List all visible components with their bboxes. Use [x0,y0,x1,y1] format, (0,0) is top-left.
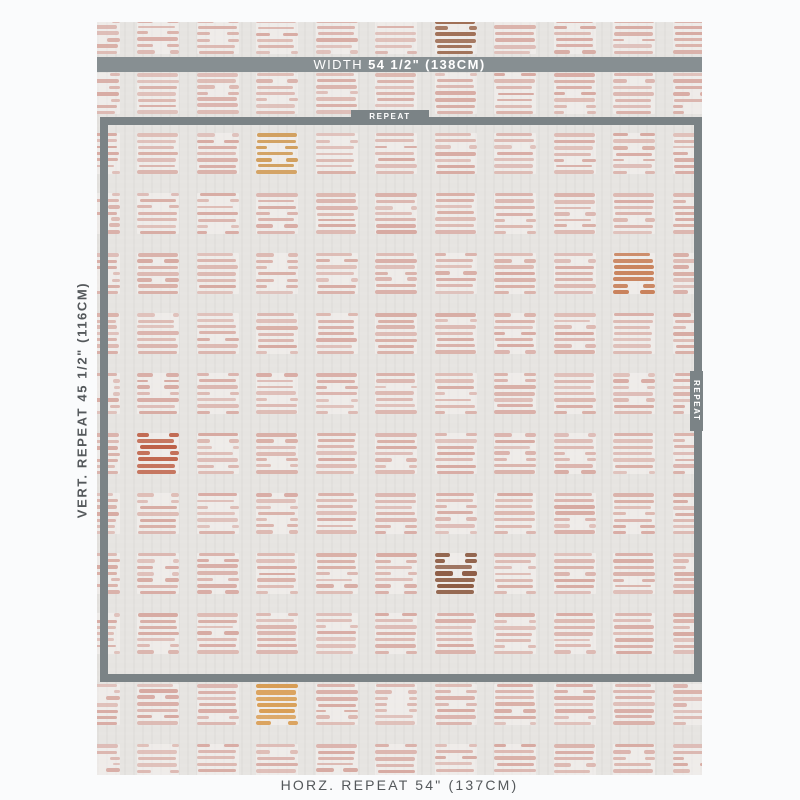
pattern-block [613,73,655,114]
pattern-block [97,684,120,725]
pattern-block [316,684,358,725]
pattern-block [316,744,358,775]
pattern-block [554,22,596,54]
pattern-block [97,73,120,114]
pattern-block [197,684,239,725]
pattern-block [673,684,703,725]
pattern-block [613,684,655,725]
pattern-block [435,744,477,775]
pattern-block [197,73,239,114]
pattern-block [197,22,239,54]
pattern-block [316,22,358,54]
pattern-block [137,73,179,114]
pattern-block-accent [256,684,298,725]
width-dimension-bar: WIDTH 54 1/2" (138CM) [97,57,702,72]
repeat-label-right: REPEAT [690,371,703,431]
pattern-block [613,744,655,775]
pattern-block-accent [435,22,477,54]
vertical-repeat-label: VERT. REPEAT 45 1/2" (116CM) [75,282,90,518]
pattern-block [97,744,120,775]
pattern-block [137,684,179,725]
pattern-block [554,684,596,725]
repeat-label-top: REPEAT [351,110,429,123]
pattern-block [137,744,179,775]
pattern-block [375,73,417,114]
pattern-block [375,744,417,775]
pattern-block [97,22,120,54]
pattern-block [673,744,703,775]
pattern-block [375,22,417,54]
pattern-block [316,73,358,114]
horizontal-repeat-label: HORZ. REPEAT 54" (137CM) [97,777,702,793]
pattern-block [256,22,298,54]
pattern-block [256,73,298,114]
pattern-block [435,684,477,725]
pattern-block [256,744,298,775]
pattern-block [613,22,655,54]
width-label: WIDTH [313,57,363,72]
pattern-block [554,73,596,114]
pattern-block [435,73,477,114]
width-value: 54 1/2" (138CM) [368,57,485,72]
pattern-block [673,22,703,54]
pattern-block [494,73,536,114]
pattern-block [375,684,417,725]
pattern-block [554,744,596,775]
fabric-spec-image: WIDTH 54 1/2" (138CM) REPEAT REPEAT VERT… [0,0,800,800]
pattern-block [137,22,179,54]
pattern-block [197,744,239,775]
pattern-block [494,744,536,775]
pattern-block [673,73,703,114]
pattern-block [494,22,536,54]
repeat-frame [100,117,702,682]
pattern-block [494,684,536,725]
